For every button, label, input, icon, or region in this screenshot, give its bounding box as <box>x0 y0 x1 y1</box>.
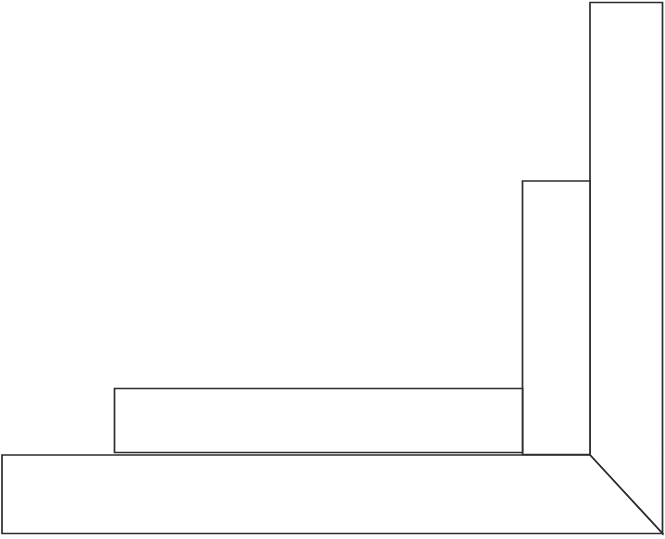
drawing-stroke-group <box>2 3 663 534</box>
diagram-canvas <box>0 0 665 539</box>
vertical-board-inner-lip-shape <box>523 181 591 455</box>
vertical-board-shape <box>590 3 663 534</box>
horizontal-board-inner-lip-shape <box>115 389 523 453</box>
miter-joint-drawing <box>0 0 665 539</box>
horizontal-board-shape <box>2 455 663 534</box>
